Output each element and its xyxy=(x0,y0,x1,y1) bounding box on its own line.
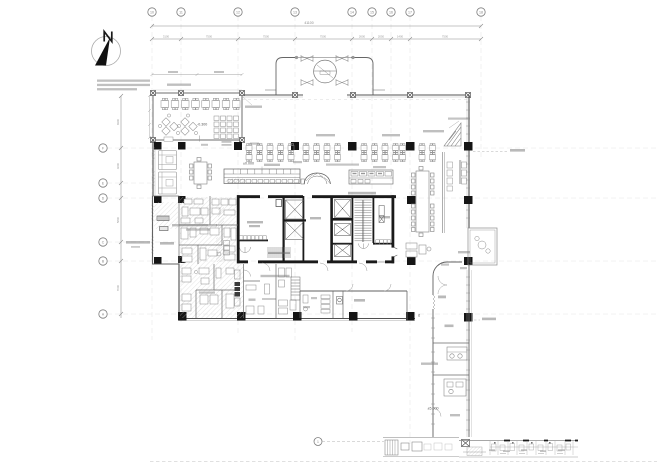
svg-text:7500: 7500 xyxy=(442,35,449,39)
svg-text:7500: 7500 xyxy=(263,35,270,39)
svg-text:6900: 6900 xyxy=(116,118,120,125)
svg-text:3100: 3100 xyxy=(163,35,170,39)
svg-text:4600: 4600 xyxy=(116,162,120,169)
svg-text:17: 17 xyxy=(408,10,412,14)
svg-text:12: 12 xyxy=(236,10,240,14)
svg-text:-0.300: -0.300 xyxy=(197,123,207,127)
svg-text:11: 11 xyxy=(179,10,183,14)
svg-text:5800: 5800 xyxy=(116,216,120,223)
svg-text:15: 15 xyxy=(370,10,374,14)
svg-text:7500: 7500 xyxy=(206,35,213,39)
svg-text:99: 99 xyxy=(417,313,421,317)
svg-text:10: 10 xyxy=(150,10,154,14)
svg-text:±0.000: ±0.000 xyxy=(243,162,254,166)
svg-text:41100: 41100 xyxy=(304,21,313,25)
svg-text:1400: 1400 xyxy=(397,35,404,39)
svg-text:1: 1 xyxy=(317,440,319,444)
svg-text:F: F xyxy=(102,146,104,150)
svg-text:16: 16 xyxy=(389,10,393,14)
svg-text:18: 18 xyxy=(479,10,483,14)
svg-text:2050: 2050 xyxy=(378,35,385,39)
svg-text:13: 13 xyxy=(293,10,297,14)
svg-text:±5.000: ±5.000 xyxy=(428,407,439,411)
svg-text:7500: 7500 xyxy=(320,35,327,39)
svg-text:7000: 7000 xyxy=(116,284,120,291)
svg-text:14: 14 xyxy=(350,10,354,14)
svg-text:2600: 2600 xyxy=(359,35,366,39)
